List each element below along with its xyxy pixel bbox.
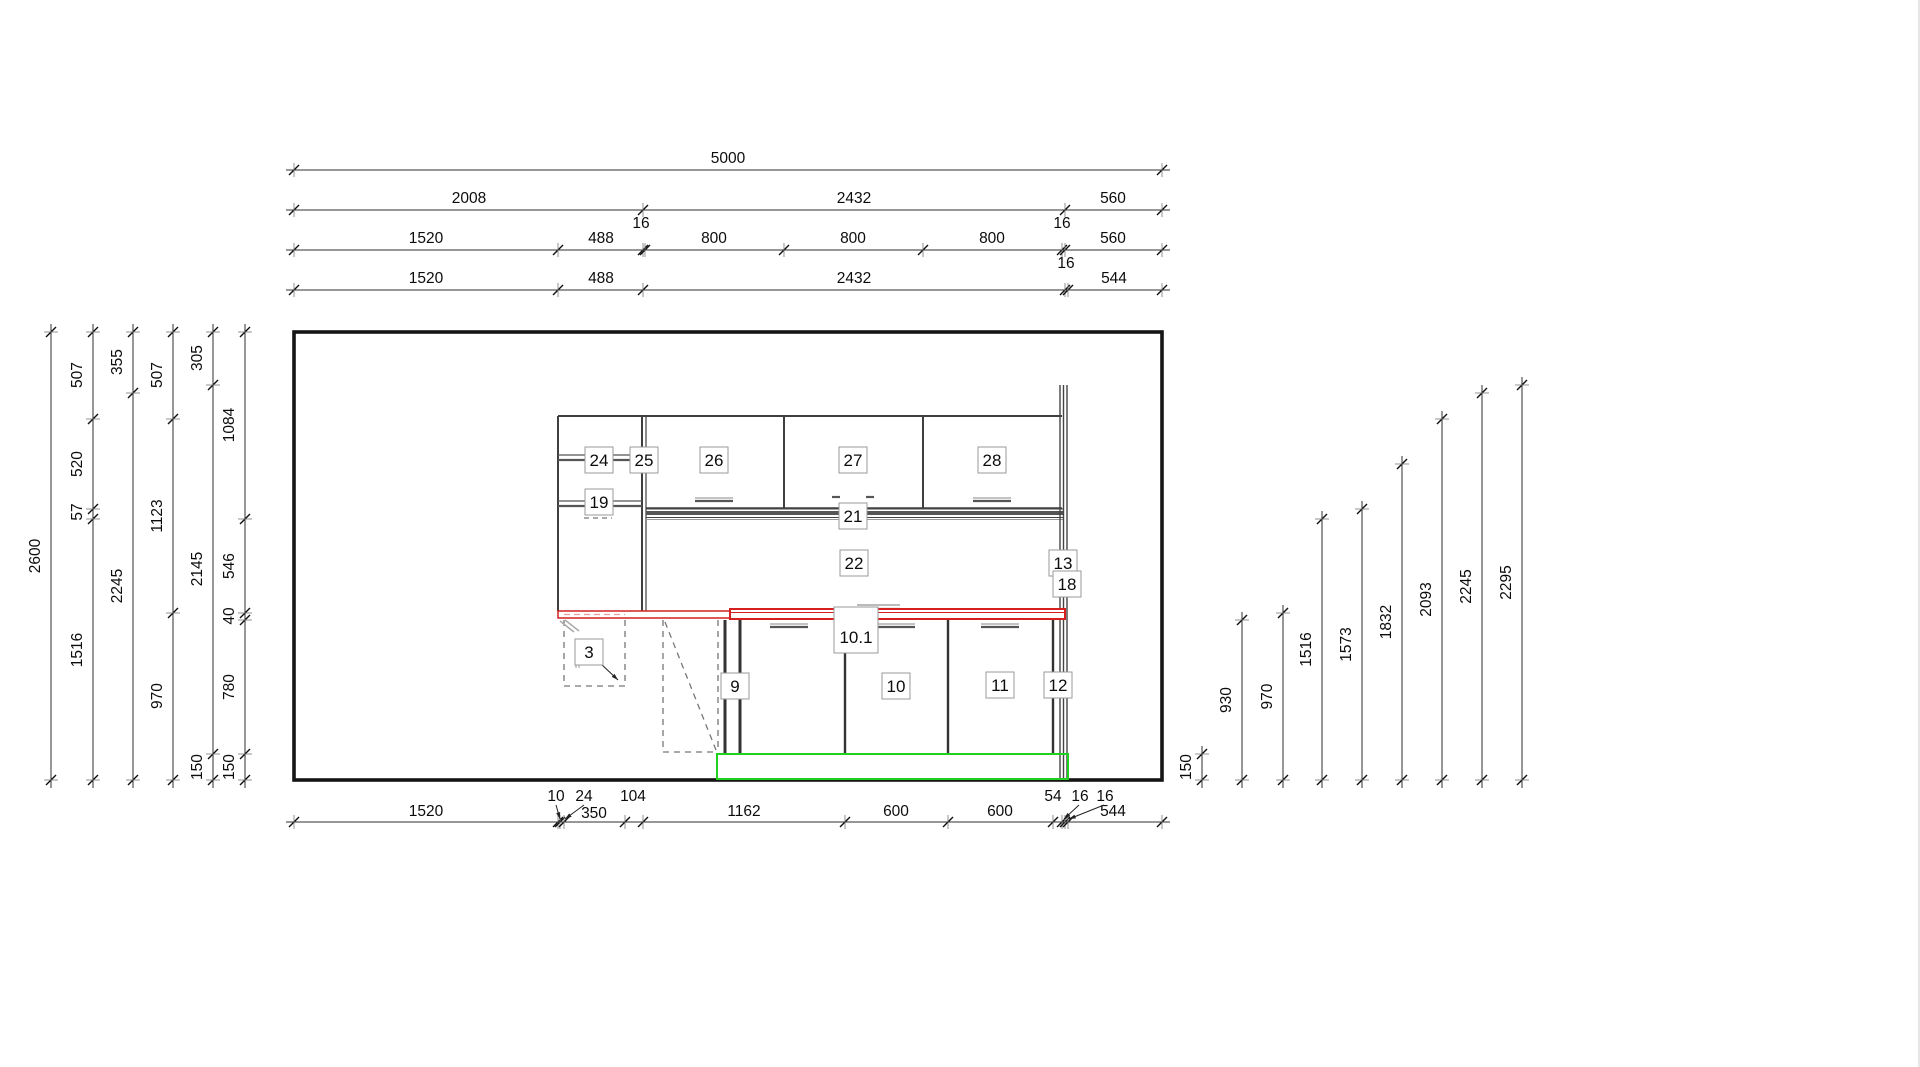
dim-label: 2245 [1458, 569, 1475, 603]
dim-label: 970 [149, 683, 166, 709]
item-label-text: 22 [845, 554, 864, 573]
dim-label: 2295 [1498, 565, 1515, 599]
item-label-text: 12 [1049, 676, 1068, 695]
countertop-right [730, 609, 1065, 619]
dim-label: 1520 [409, 230, 444, 247]
item-label-text: 25 [635, 451, 654, 470]
item-label-text: 26 [705, 451, 724, 470]
item-label-text: 28 [983, 451, 1002, 470]
dim-label: 2432 [837, 270, 871, 287]
countertop-layer [558, 609, 1065, 619]
dim-label: 1520 [409, 803, 444, 820]
dim-label: 544 [1100, 803, 1126, 820]
item-label-text: 10 [887, 677, 906, 696]
dim-label: 16 [632, 215, 649, 232]
dim-label: 16 [1057, 255, 1074, 272]
dim-label: 507 [149, 362, 166, 388]
dim-label: 150 [1178, 754, 1195, 780]
dim-label: 305 [189, 345, 206, 371]
dim-label: 2432 [837, 190, 871, 207]
dim-label: 930 [1218, 687, 1235, 713]
dim-label: 546 [221, 553, 238, 579]
dim-label: 16 [1053, 215, 1070, 232]
room-outline-layer [294, 332, 1162, 780]
dim-label: 1516 [1298, 632, 1315, 666]
dim-label: 1832 [1378, 605, 1395, 639]
dim-label: 488 [588, 230, 614, 247]
dim-label: 2245 [109, 569, 126, 603]
dim-label: 1162 [727, 803, 760, 820]
item-label-text: 3 [584, 643, 593, 662]
item-label-text: 9 [730, 677, 739, 696]
item-label-text: 24 [590, 451, 609, 470]
dim-label: 560 [1100, 190, 1126, 207]
dim-label: 2008 [452, 190, 486, 207]
dim-label: 1573 [1338, 627, 1355, 661]
cad-application-canvas: 5000200824325601520488168008008001656015… [0, 0, 1920, 1067]
dim-label: 507 [69, 362, 86, 388]
dim-label: 488 [588, 270, 614, 287]
dim-label: 1520 [409, 270, 444, 287]
item-label-text: 13 [1054, 554, 1073, 573]
room-outline [294, 332, 1162, 780]
dim-label: 600 [987, 803, 1013, 820]
item-label-text: 18 [1058, 575, 1077, 594]
dim-label: 104 [620, 788, 646, 805]
item-label-text: 19 [590, 493, 609, 512]
dim-label: 800 [701, 230, 727, 247]
dim-label: 40 [221, 607, 238, 625]
dim-label: 24 [575, 788, 593, 805]
dim-label: 560 [1100, 230, 1126, 247]
dim-label: 16 [1071, 788, 1088, 805]
item-label-text: 11 [991, 676, 1009, 695]
dim-label: 600 [883, 803, 909, 820]
dim-label: 544 [1101, 270, 1127, 287]
dim-label: 150 [221, 754, 238, 780]
dim-label: 2093 [1418, 582, 1435, 616]
dim-label: 57 [69, 503, 86, 520]
dim-label: 350 [581, 805, 607, 822]
dim-label: 800 [979, 230, 1005, 247]
dim-label: 1516 [69, 633, 86, 667]
dim-label: 520 [69, 451, 86, 477]
dim-label: 54 [1044, 788, 1062, 805]
countertop-left [558, 611, 730, 618]
dim-label: 355 [109, 349, 126, 375]
leader-arrowhead [1069, 815, 1076, 819]
item-label-text: 10.1 [839, 628, 872, 647]
dim-label: 10 [547, 788, 565, 805]
dim-label: 1123 [149, 499, 166, 532]
dim-label: 5000 [711, 150, 746, 167]
dim-label: 780 [221, 674, 238, 700]
dim-label: 150 [189, 754, 206, 780]
item-label-text: 27 [844, 451, 863, 470]
kitchen-elevation-drawing: 5000200824325601520488168008008001656015… [0, 0, 1920, 1067]
dim-label: 1084 [221, 407, 238, 442]
dim-label: 2145 [189, 552, 206, 586]
dim-label: 800 [840, 230, 866, 247]
dim-label: 2600 [27, 538, 44, 573]
item-label-text: 21 [844, 507, 863, 526]
dim-label: 970 [1259, 683, 1276, 709]
